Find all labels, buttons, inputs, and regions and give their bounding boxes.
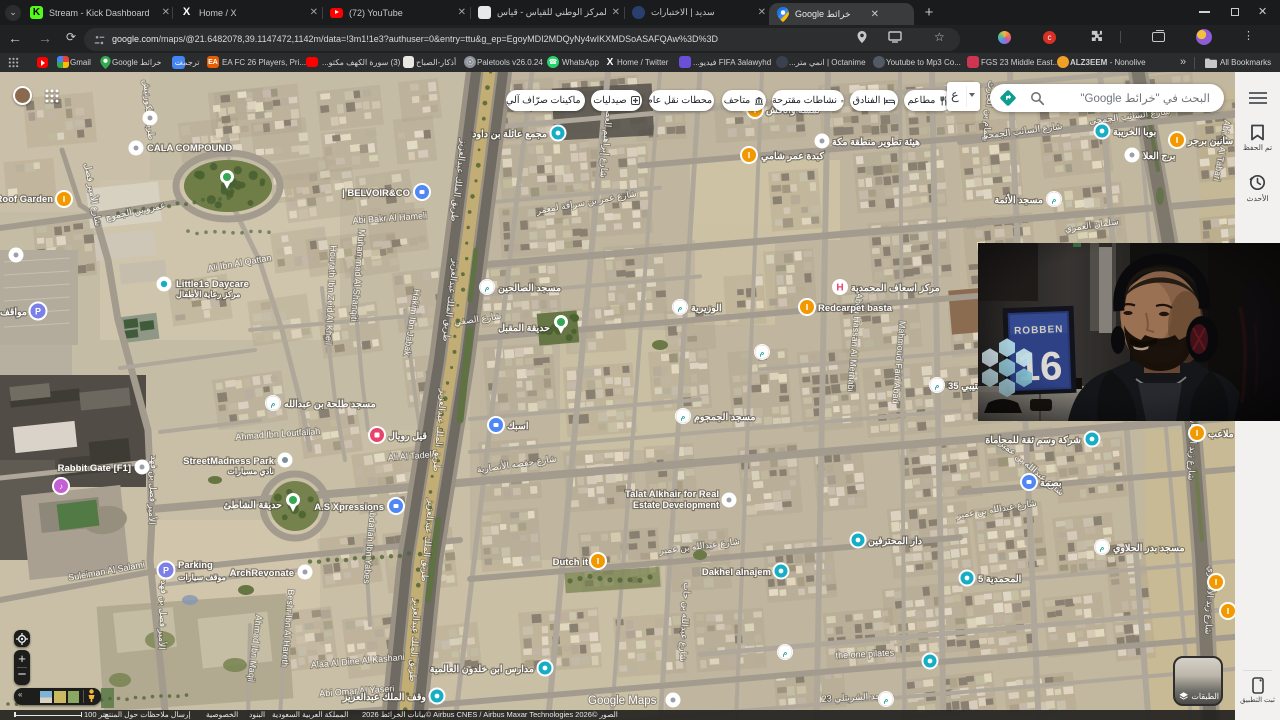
svg-text:هيئة تطوير منطقة مكة: هيئة تطوير منطقة مكة: [832, 137, 920, 148]
svg-text:مسجد الصالحين: مسجد الصالحين: [498, 283, 561, 294]
svg-text:A.S Xpressions: A.S Xpressions: [314, 502, 384, 513]
svg-text:مسجد طلحة بن عبدالله: مسجد طلحة بن عبدالله: [284, 399, 376, 410]
svg-text:دار المحترفين: دار المحترفين: [868, 536, 923, 547]
svg-text:‖: ‖: [1226, 607, 1229, 616]
svg-text:حديقة المقبل: حديقة المقبل: [498, 323, 550, 334]
svg-text:مسجد الجمجوم: مسجد الجمجوم: [694, 412, 755, 423]
svg-text:قيل رويال: قيل رويال: [388, 431, 427, 442]
svg-text:مجمع عائلة بن داود: مجمع عائلة بن داود: [472, 129, 547, 140]
svg-text:مركز اسعاف المحمدية: مركز اسعاف المحمدية: [851, 283, 940, 294]
svg-text:مدارس ابن خلدون العالمية: مدارس ابن خلدون العالمية: [430, 664, 534, 675]
svg-text:اسبك: اسبك: [507, 421, 529, 432]
svg-text:شركة وسم ثقة للمحاماة: شركة وسم ثقة للمحاماة: [985, 435, 1081, 446]
svg-text:‖: ‖: [596, 557, 599, 566]
svg-text:P: P: [35, 307, 41, 317]
svg-text:برج العلا: برج العلا: [1143, 151, 1176, 162]
svg-text:Estate Development: Estate Development: [633, 500, 719, 510]
svg-text:المحمدية 5: المحمدية 5: [978, 574, 1022, 585]
svg-text:ملاعب: ملاعب: [1208, 429, 1234, 440]
svg-text:مركز رعاية الأطفال: مركز رعاية الأطفال: [176, 288, 240, 300]
svg-text:م: م: [678, 303, 683, 312]
svg-text:♪: ♪: [59, 482, 63, 491]
svg-text:‖: ‖: [805, 303, 808, 312]
svg-text:Parking: Parking: [178, 560, 213, 571]
svg-text:م: م: [681, 412, 686, 421]
svg-text:مسجد بدر الحلاوي: مسجد بدر الحلاوي: [1113, 543, 1185, 554]
svg-text:م: م: [271, 399, 276, 408]
svg-text:بوبا الخريبة: بوبا الخريبة: [1113, 127, 1157, 138]
svg-text:ArchRevonate: ArchRevonate: [230, 568, 294, 579]
svg-text:Google Maps: Google Maps: [588, 695, 657, 707]
svg-text:‖: ‖: [62, 195, 65, 204]
svg-text:Dutch it: Dutch it: [553, 557, 589, 568]
svg-text:كبدة عمر شامي: كبدة عمر شامي: [761, 151, 824, 162]
svg-text:Little1s Daycare: Little1s Daycare: [176, 279, 249, 290]
svg-text:‖: ‖: [1214, 578, 1217, 587]
svg-text:‖: ‖: [1195, 429, 1198, 438]
svg-text:P: P: [163, 566, 169, 576]
svg-text:Rabbit Gate [F1]: Rabbit Gate [F1]: [58, 463, 131, 474]
svg-text:وقف الملك عبدالعزيز: وقف الملك عبدالعزيز: [342, 692, 427, 703]
svg-text:نادي مسيارات: نادي مسيارات: [227, 467, 274, 477]
svg-text:StreetMadness Park: StreetMadness Park: [183, 456, 275, 467]
svg-text:م: م: [1100, 543, 1105, 552]
svg-text:‖: ‖: [1175, 136, 1178, 145]
svg-text:مواقف س: مواقف س: [0, 307, 27, 318]
svg-text:H: H: [836, 283, 843, 294]
svg-text:‖: ‖: [747, 151, 750, 160]
svg-text:Talat Alkhair for Real: Talat Alkhair for Real: [625, 489, 719, 500]
svg-text:سانين برجر: سانين برجر: [1187, 136, 1233, 147]
svg-text:م: م: [783, 648, 788, 657]
svg-text:م: م: [485, 283, 490, 292]
svg-text:Dakhel alnajem: Dakhel alnajem: [702, 567, 771, 578]
svg-text:الوزيرية: الوزيرية: [691, 303, 722, 314]
svg-text:موقف سيارات: موقف سيارات: [178, 573, 226, 583]
svg-text:Redcarpet basta: Redcarpet basta: [818, 303, 893, 314]
svg-text:Roof Garden: Roof Garden: [0, 194, 53, 205]
svg-text:| BELVOIR&CO: | BELVOIR&CO: [342, 188, 410, 199]
svg-text:بصمة: بصمة: [1040, 478, 1062, 489]
svg-text:حديقة الشاطئ: حديقة الشاطئ: [224, 500, 283, 511]
svg-text:CALA COMPOUND: CALA COMPOUND: [147, 143, 232, 154]
svg-text:م: م: [760, 348, 765, 357]
svg-text:م: م: [935, 381, 940, 390]
svg-text:م: م: [1052, 195, 1057, 204]
svg-text:م: م: [884, 695, 889, 704]
svg-text:مسجد الأئمة: مسجد الأئمة: [994, 194, 1043, 206]
